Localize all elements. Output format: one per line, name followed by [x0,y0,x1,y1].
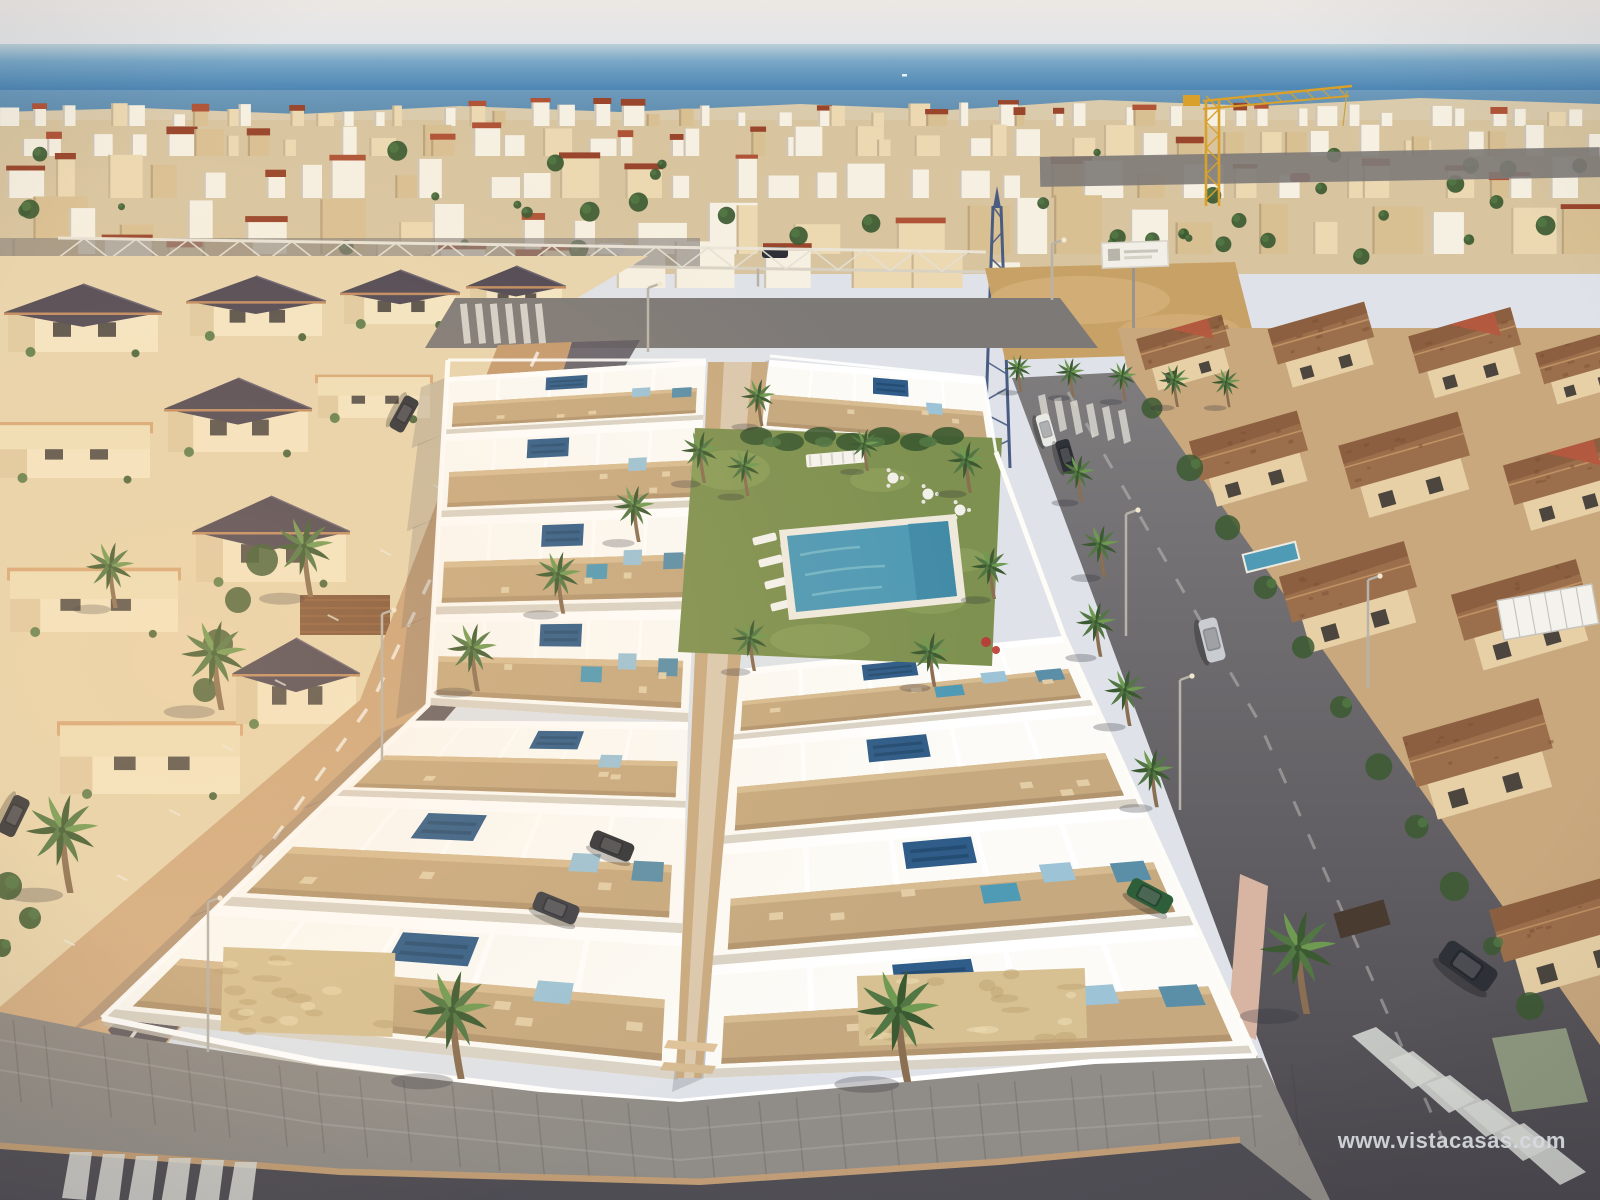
vignette [0,0,1600,1200]
scene-canvas [0,0,1600,1200]
watermark: www.vistacasas.com [1338,1128,1566,1154]
aerial-development-render: www.vistacasas.com [0,0,1600,1200]
